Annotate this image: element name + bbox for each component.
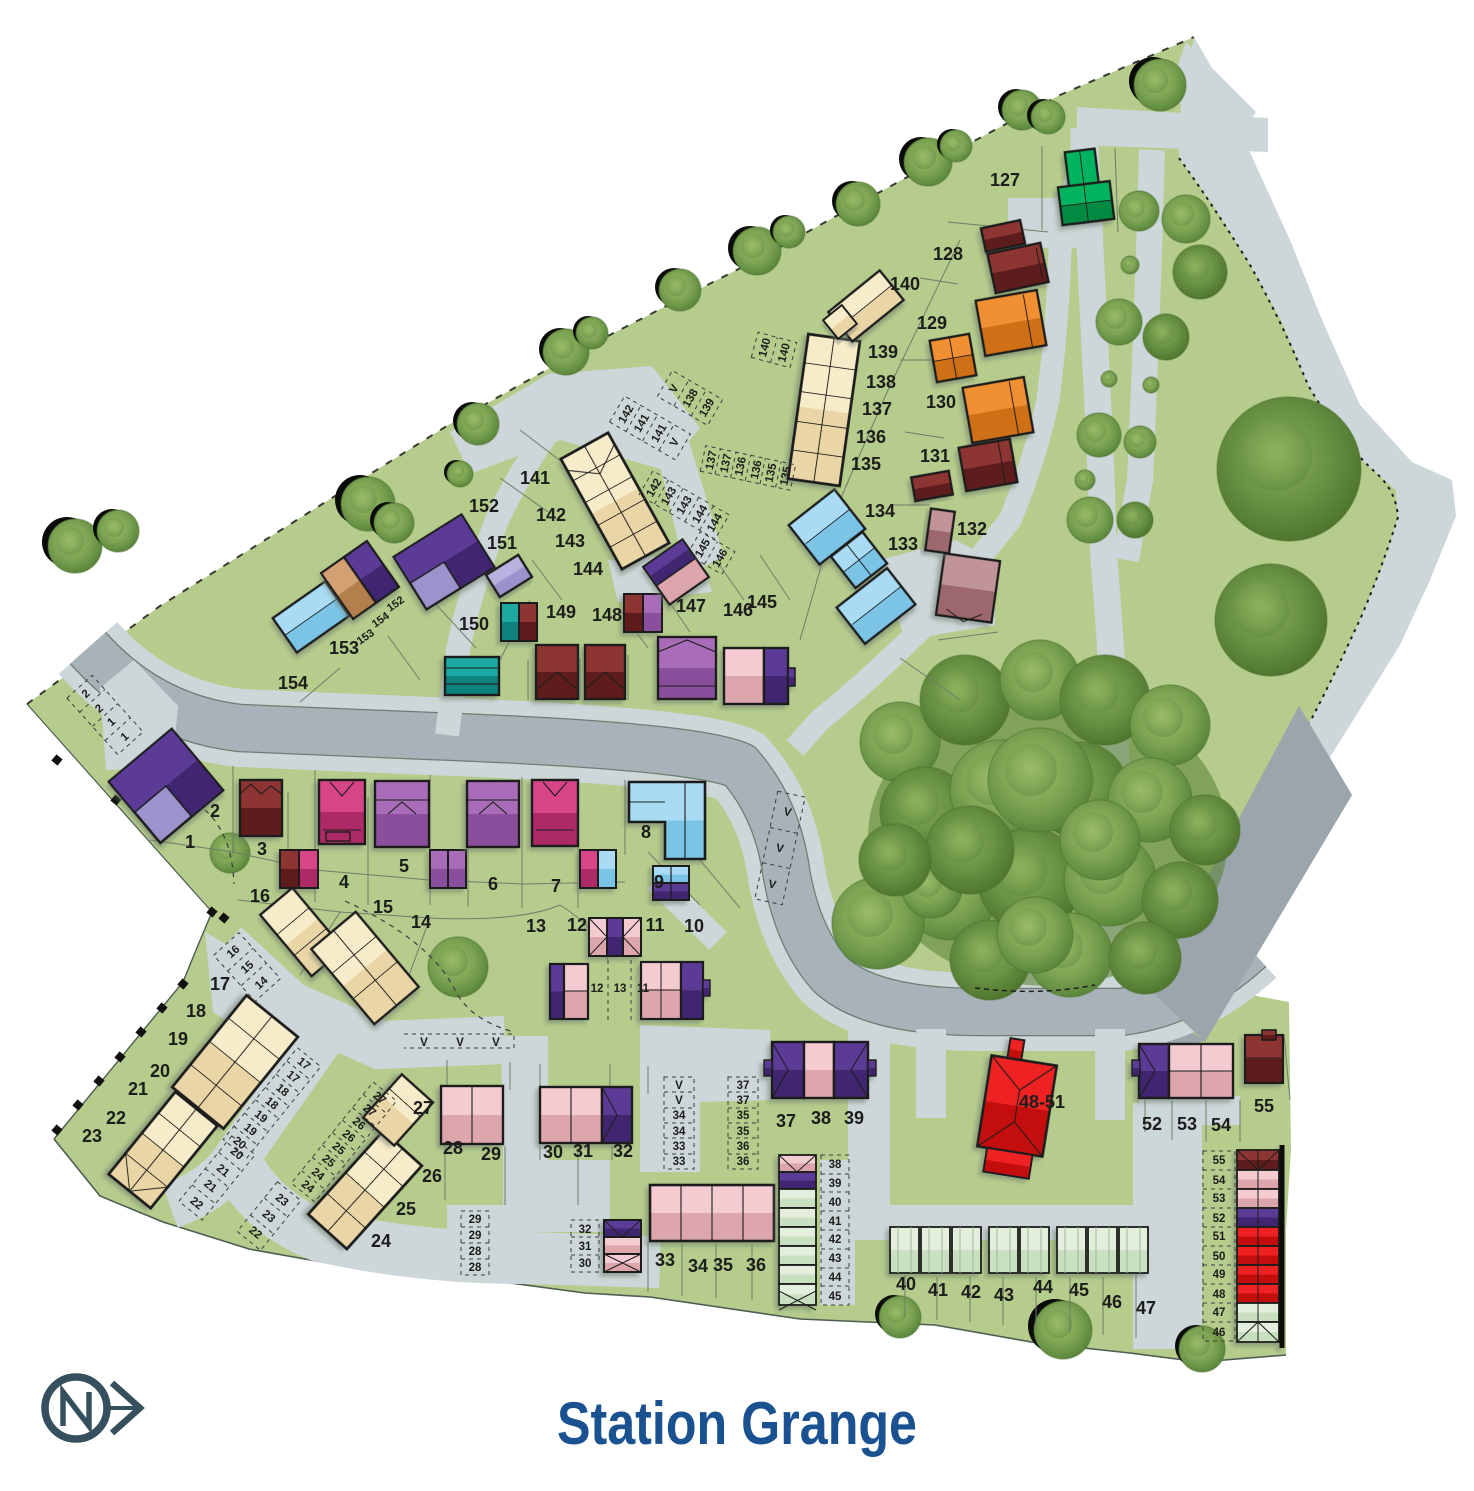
svg-text:26: 26 — [422, 1166, 442, 1186]
svg-text:37: 37 — [776, 1111, 796, 1131]
svg-text:54: 54 — [1213, 1175, 1226, 1187]
svg-text:48: 48 — [1213, 1289, 1226, 1301]
svg-text:28: 28 — [443, 1138, 463, 1158]
svg-text:151: 151 — [487, 533, 517, 553]
svg-text:36: 36 — [737, 1156, 750, 1168]
svg-text:V: V — [456, 1037, 464, 1049]
svg-text:143: 143 — [555, 531, 585, 551]
svg-text:34: 34 — [688, 1256, 708, 1276]
svg-text:46: 46 — [1213, 1327, 1226, 1339]
svg-text:138: 138 — [866, 372, 896, 392]
svg-text:V: V — [492, 1037, 500, 1049]
svg-text:30: 30 — [543, 1142, 563, 1162]
svg-text:12: 12 — [591, 983, 604, 995]
svg-text:28: 28 — [469, 1262, 482, 1274]
svg-text:3: 3 — [257, 839, 267, 859]
svg-text:144: 144 — [573, 559, 603, 579]
svg-text:6: 6 — [488, 874, 498, 894]
svg-text:13: 13 — [526, 916, 546, 936]
svg-text:46: 46 — [1102, 1292, 1122, 1312]
svg-text:149: 149 — [546, 602, 576, 622]
svg-text:130: 130 — [926, 392, 956, 412]
svg-text:44: 44 — [1033, 1277, 1053, 1297]
svg-text:9: 9 — [654, 872, 664, 892]
svg-text:39: 39 — [829, 1178, 842, 1190]
svg-text:32: 32 — [613, 1141, 633, 1161]
svg-text:31: 31 — [579, 1241, 592, 1253]
svg-text:19: 19 — [168, 1029, 188, 1049]
svg-text:142: 142 — [536, 505, 566, 525]
svg-text:32: 32 — [579, 1224, 592, 1236]
svg-text:134: 134 — [865, 501, 895, 521]
svg-text:131: 131 — [920, 446, 950, 466]
svg-text:29: 29 — [469, 1230, 482, 1242]
svg-text:4: 4 — [339, 872, 349, 892]
svg-text:44: 44 — [829, 1272, 842, 1284]
svg-text:136: 136 — [856, 427, 886, 447]
svg-text:Station Grange: Station Grange — [557, 1390, 917, 1457]
svg-text:153: 153 — [329, 638, 359, 658]
svg-text:40: 40 — [829, 1197, 842, 1209]
svg-text:24: 24 — [371, 1231, 391, 1251]
svg-text:29: 29 — [481, 1144, 501, 1164]
svg-text:38: 38 — [811, 1108, 831, 1128]
svg-text:139: 139 — [868, 342, 898, 362]
svg-text:152: 152 — [469, 496, 499, 516]
svg-text:30: 30 — [579, 1258, 592, 1270]
svg-text:129: 129 — [917, 313, 947, 333]
svg-text:43: 43 — [994, 1285, 1014, 1305]
svg-text:38: 38 — [829, 1159, 842, 1171]
svg-text:55: 55 — [1254, 1096, 1274, 1116]
svg-text:11: 11 — [645, 915, 664, 935]
svg-text:5: 5 — [399, 856, 409, 876]
svg-text:148: 148 — [592, 605, 622, 625]
svg-text:43: 43 — [829, 1253, 842, 1265]
svg-text:140: 140 — [890, 274, 920, 294]
svg-text:29: 29 — [469, 1214, 482, 1226]
svg-text:15: 15 — [373, 897, 393, 917]
svg-text:52: 52 — [1142, 1114, 1162, 1134]
svg-text:40: 40 — [896, 1274, 916, 1294]
svg-text:2: 2 — [210, 801, 220, 821]
svg-text:17: 17 — [210, 974, 230, 994]
svg-text:49: 49 — [1213, 1269, 1226, 1281]
svg-text:147: 147 — [676, 596, 706, 616]
svg-text:34: 34 — [673, 1110, 686, 1122]
svg-text:33: 33 — [673, 1141, 686, 1153]
svg-text:10: 10 — [684, 916, 704, 936]
svg-text:127: 127 — [990, 170, 1020, 190]
svg-text:47: 47 — [1136, 1298, 1156, 1318]
svg-text:42: 42 — [961, 1282, 981, 1302]
svg-text:37: 37 — [737, 1080, 750, 1092]
svg-text:154: 154 — [278, 673, 308, 693]
svg-text:53: 53 — [1213, 1193, 1226, 1205]
svg-text:21: 21 — [128, 1079, 148, 1099]
svg-text:45: 45 — [1069, 1280, 1089, 1300]
svg-text:146: 146 — [723, 600, 753, 620]
svg-text:13: 13 — [614, 983, 627, 995]
svg-text:20: 20 — [150, 1061, 170, 1081]
svg-text:16: 16 — [250, 886, 270, 906]
svg-text:1: 1 — [185, 832, 195, 852]
svg-text:48-51: 48-51 — [1019, 1092, 1065, 1112]
svg-text:8: 8 — [641, 822, 651, 842]
svg-text:137: 137 — [862, 399, 892, 419]
svg-text:133: 133 — [888, 534, 918, 554]
svg-text:V: V — [675, 1095, 683, 1107]
svg-text:12: 12 — [567, 915, 587, 935]
svg-text:18: 18 — [186, 1001, 206, 1021]
svg-text:V: V — [675, 1080, 683, 1092]
svg-text:35: 35 — [737, 1126, 750, 1138]
svg-text:22: 22 — [106, 1108, 126, 1128]
svg-text:35: 35 — [737, 1110, 750, 1122]
svg-text:36: 36 — [737, 1141, 750, 1153]
svg-text:50: 50 — [1213, 1251, 1226, 1263]
svg-text:141: 141 — [520, 468, 550, 488]
svg-text:128: 128 — [933, 244, 963, 264]
svg-text:V: V — [420, 1037, 428, 1049]
svg-text:47: 47 — [1213, 1307, 1226, 1319]
svg-text:31: 31 — [573, 1141, 593, 1161]
svg-text:51: 51 — [1213, 1231, 1226, 1243]
svg-text:33: 33 — [673, 1156, 686, 1168]
svg-text:41: 41 — [928, 1280, 948, 1300]
svg-text:25: 25 — [396, 1199, 416, 1219]
svg-text:55: 55 — [1213, 1155, 1226, 1167]
svg-text:14: 14 — [411, 912, 431, 932]
svg-text:132: 132 — [957, 519, 987, 539]
svg-text:54: 54 — [1211, 1115, 1231, 1135]
svg-text:34: 34 — [673, 1126, 686, 1138]
svg-text:37: 37 — [737, 1095, 750, 1107]
svg-text:150: 150 — [459, 614, 489, 634]
svg-text:41: 41 — [829, 1216, 842, 1228]
svg-text:42: 42 — [829, 1234, 842, 1246]
svg-text:28: 28 — [469, 1246, 482, 1258]
svg-text:45: 45 — [829, 1291, 842, 1303]
svg-text:11: 11 — [637, 983, 650, 995]
svg-text:33: 33 — [655, 1250, 675, 1270]
svg-text:39: 39 — [844, 1108, 864, 1128]
svg-text:7: 7 — [551, 876, 561, 896]
svg-text:53: 53 — [1177, 1114, 1197, 1134]
svg-text:23: 23 — [82, 1126, 102, 1146]
svg-text:135: 135 — [851, 454, 881, 474]
svg-text:35: 35 — [713, 1255, 733, 1275]
svg-text:36: 36 — [746, 1255, 766, 1275]
svg-text:52: 52 — [1213, 1213, 1226, 1225]
svg-text:27: 27 — [413, 1098, 433, 1118]
